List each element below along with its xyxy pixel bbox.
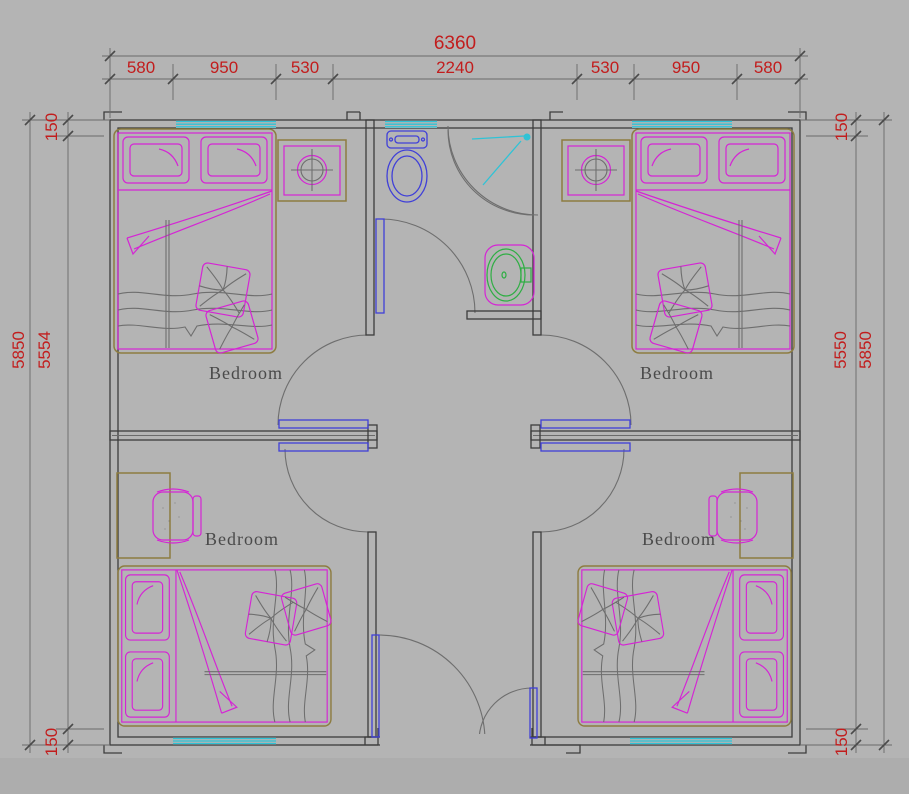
door-arc-bottom-left-bedroom xyxy=(285,449,368,532)
dim-top-seg-1: 580 xyxy=(106,59,176,77)
corner-notch-bottom-right xyxy=(788,745,806,753)
room-label-top-right: Bedroom xyxy=(632,363,722,383)
nightstand-top-left xyxy=(278,140,346,201)
window-bottom-right xyxy=(630,738,732,745)
dim-top-seg-4: 2240 xyxy=(420,59,490,77)
bed-top-right xyxy=(632,129,794,354)
door-arc-top-right-bedroom xyxy=(541,335,631,425)
shower-head-icon xyxy=(472,134,531,186)
walls xyxy=(104,112,806,753)
dim-top-seg-3: 530 xyxy=(270,59,340,77)
bottom-strip xyxy=(0,758,909,794)
window-bathroom xyxy=(385,121,437,129)
bed-bottom-left xyxy=(118,566,332,726)
floor-plan-drawing xyxy=(0,0,909,794)
dim-left-top-150: 150 xyxy=(43,97,61,157)
door-leaf-bottom-right-bedroom xyxy=(541,443,630,451)
dim-right-overall: 5850 xyxy=(857,290,875,410)
dim-top-seg-6: 950 xyxy=(651,59,721,77)
dimension-lines xyxy=(22,48,892,753)
mid-wall-right-cap xyxy=(531,425,540,448)
window-top-left xyxy=(176,121,276,129)
column-notch-top-right-of-bath xyxy=(550,112,563,120)
room-label-bottom-left: Bedroom xyxy=(197,529,287,549)
dim-top-seg-7: 580 xyxy=(733,59,803,77)
door-leaf-bottom-left-bedroom xyxy=(279,443,368,451)
basin-tap xyxy=(521,268,531,282)
inner-wall-face xyxy=(118,128,792,737)
door-arc-entry-left xyxy=(379,635,485,741)
bathroom-west-wall xyxy=(366,120,374,335)
dim-right-mid: 5550 xyxy=(832,290,850,410)
floor-plan-canvas: 6360 580 950 530 2240 530 950 580 5850 5… xyxy=(0,0,909,794)
door-arc-bathroom xyxy=(381,219,475,313)
corner-notch-top-right xyxy=(788,112,806,120)
corner-shower xyxy=(448,126,538,215)
dim-top-seg-5: 530 xyxy=(570,59,640,77)
room-label-bottom-right: Bedroom xyxy=(634,529,724,549)
dim-left-overall: 5850 xyxy=(10,290,28,410)
mid-wall-left-cap xyxy=(368,425,377,448)
door-leaf-bathroom xyxy=(376,219,384,313)
bed-bottom-right xyxy=(577,566,791,726)
door-arc-top-left-bedroom xyxy=(278,335,368,425)
dim-total-width: 6360 xyxy=(415,35,495,53)
column-notch-top-left-of-bath xyxy=(347,112,360,120)
bed-top-left xyxy=(114,129,276,354)
nightstand-top-right xyxy=(562,140,630,201)
window-bottom-left xyxy=(173,738,276,745)
washbasin xyxy=(485,245,534,305)
bathroom-south-wall xyxy=(467,311,541,319)
windows xyxy=(173,121,732,745)
bathroom-east-wall xyxy=(533,120,541,335)
corner-notch-top-left xyxy=(104,112,122,120)
desk-bottom-left xyxy=(117,473,201,558)
door-leaf-top-left-bedroom xyxy=(279,420,368,428)
window-top-right xyxy=(632,121,732,129)
room-label-top-left: Bedroom xyxy=(201,363,291,383)
dim-top-seg-2: 950 xyxy=(189,59,259,77)
dim-right-top-150: 150 xyxy=(833,97,851,157)
corner-notch-bottom-left xyxy=(104,745,122,753)
door-arc-entry-right xyxy=(479,688,532,741)
dim-left-mid: 5554 xyxy=(36,290,54,410)
door-arc-bottom-right-bedroom xyxy=(541,449,624,532)
outer-wall xyxy=(110,120,800,745)
toilet xyxy=(387,131,427,202)
door-leaf-top-right-bedroom xyxy=(541,420,630,428)
entry-jamb-right xyxy=(532,728,580,753)
